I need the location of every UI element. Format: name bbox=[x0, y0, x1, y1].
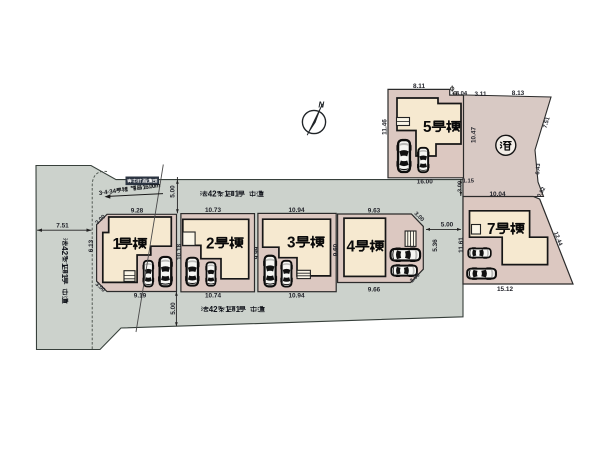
svg-text:11.61: 11.61 bbox=[458, 237, 465, 253]
svg-text:5.00: 5.00 bbox=[170, 302, 177, 315]
svg-text:5.00: 5.00 bbox=[441, 222, 454, 229]
svg-text:42: 42 bbox=[60, 246, 69, 256]
svg-text:10.04: 10.04 bbox=[490, 191, 506, 198]
svg-text:3: 3 bbox=[287, 235, 295, 252]
svg-text:10.94: 10.94 bbox=[289, 207, 305, 214]
svg-text:3.11: 3.11 bbox=[474, 91, 487, 98]
svg-text:5: 5 bbox=[423, 119, 432, 136]
svg-text:9.63: 9.63 bbox=[368, 208, 381, 215]
svg-text:4: 4 bbox=[346, 239, 355, 256]
svg-text:10.74: 10.74 bbox=[205, 292, 221, 299]
svg-text:16.00: 16.00 bbox=[417, 178, 433, 185]
svg-text:10.47: 10.47 bbox=[471, 127, 478, 143]
svg-text:10.18: 10.18 bbox=[176, 244, 183, 260]
svg-text:7.51: 7.51 bbox=[56, 222, 69, 229]
svg-text:6.43: 6.43 bbox=[535, 162, 542, 174]
svg-text:9.19: 9.19 bbox=[134, 293, 147, 300]
svg-text:42: 42 bbox=[209, 305, 218, 314]
svg-text:15.12: 15.12 bbox=[497, 286, 513, 293]
svg-text:5.36: 5.36 bbox=[432, 239, 439, 252]
svg-text:11.46: 11.46 bbox=[382, 119, 389, 135]
svg-text:9.60: 9.60 bbox=[333, 243, 340, 256]
svg-text:7: 7 bbox=[487, 221, 495, 238]
svg-text:10.73: 10.73 bbox=[205, 207, 221, 214]
svg-text:42: 42 bbox=[208, 190, 217, 199]
svg-text:8.11: 8.11 bbox=[413, 83, 426, 90]
svg-text:9.66: 9.66 bbox=[368, 287, 381, 294]
svg-text:3.04: 3.04 bbox=[456, 91, 468, 97]
svg-text:8.13: 8.13 bbox=[512, 90, 525, 97]
svg-text:9.99: 9.99 bbox=[254, 246, 261, 259]
svg-text:1.15: 1.15 bbox=[463, 179, 475, 185]
svg-text:N: N bbox=[318, 100, 324, 109]
svg-text:9.28: 9.28 bbox=[131, 208, 144, 215]
svg-text:6.13: 6.13 bbox=[88, 239, 95, 252]
svg-text:10.94: 10.94 bbox=[289, 292, 305, 299]
svg-text:2: 2 bbox=[206, 235, 214, 252]
svg-text:5.00: 5.00 bbox=[170, 185, 177, 198]
